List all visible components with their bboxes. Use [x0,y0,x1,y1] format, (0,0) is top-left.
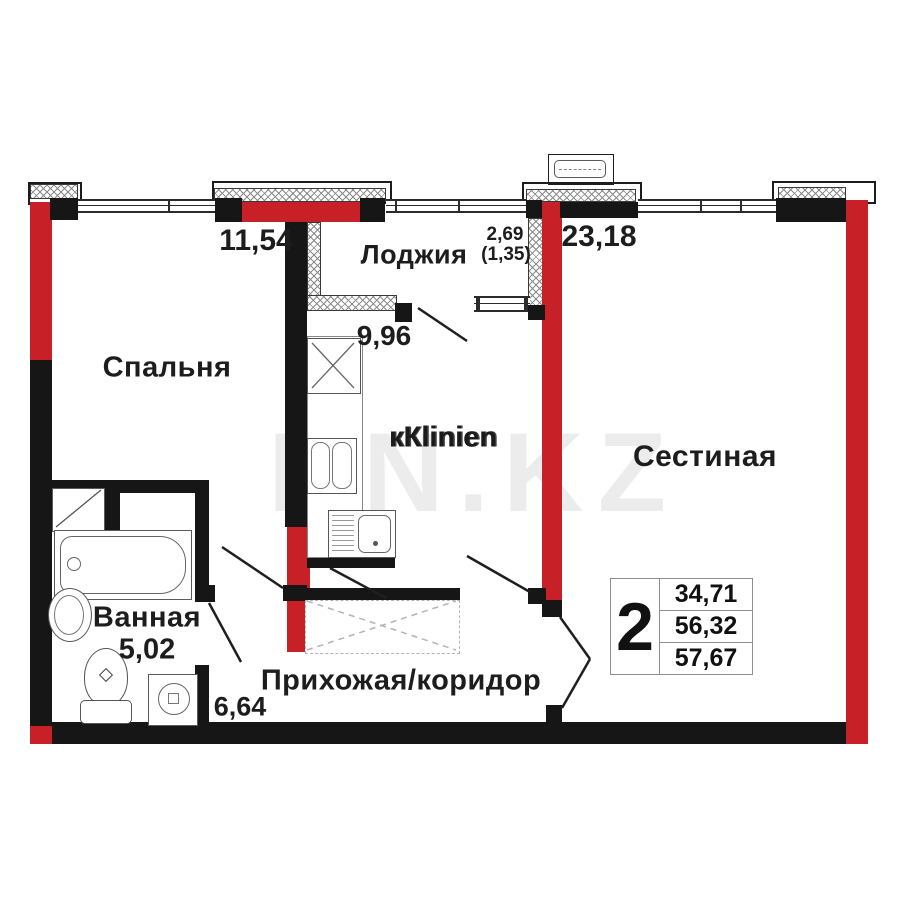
washing-machine-dial [168,693,179,704]
bathroom-sink-bowl [54,595,84,635]
bedroom-area: 11,54 [219,224,292,258]
bathroom-sink [48,588,92,642]
wall-left-lower [30,360,52,726]
total-area-value: 57,67 [660,642,752,674]
bathroom-area: 5,02 [119,634,175,667]
wall-red-left-upper [30,202,52,360]
kitchen-fridge-door-1 [311,442,330,489]
loggia-area: 2,69 [487,224,524,246]
wall-wardrobe-top [303,588,460,600]
hatch-top-left [30,184,78,199]
living-area-value: 34,71 [660,579,752,610]
toilet-tank [80,700,132,724]
kitchen-fridge-door-2 [332,442,352,489]
wall-red-bottom-left-corner [30,726,52,744]
loggia-area-coefficient: (1,35) [481,244,531,266]
wall-red-central [542,202,562,600]
wall-shaft-edge [103,488,120,530]
wall-bathroom-right-upper [195,480,209,585]
wall-bathroom-door-jamb [195,585,215,602]
wall-entry-notch [546,705,562,722]
kitchen-stove [307,338,361,394]
hallway-label: Прихожая/коридор [261,665,541,698]
wall-hall-door-jamb-b [542,600,562,617]
kitchen-label-garbled: кКlinien [389,422,497,455]
window-loggia-facade [386,199,526,213]
floor-plan: KN.KZ [0,0,900,900]
window-kitchen-loggia [474,296,530,312]
area-without-loggia-value: 56,32 [660,610,752,642]
wall-loggia-right-end [528,305,545,320]
bathroom-label: Ванная [93,602,201,635]
wall-pier-center [526,200,542,218]
living-room-label: Сестиная [633,440,777,474]
wall-living-top [560,202,638,218]
hallway-area: 6,64 [214,692,267,723]
wall-pier-top-left [50,198,78,220]
wall-red-top-bedroom [242,202,360,222]
window-bedroom [78,199,215,213]
loggia-label: Лоджия [361,240,468,271]
apartment-info-table: 2 34,71 56,32 57,67 [610,578,753,675]
kitchen-sink-drainboard [332,515,354,551]
wall-pier-top-right [776,198,846,222]
ac-unit-dash [559,169,601,170]
wall-red-right [846,200,868,744]
kitchen-fridge [307,438,357,494]
kitchen-sink [328,510,396,558]
hatch-center-top [526,189,636,202]
washing-machine [148,674,198,726]
ventilation-shaft [52,488,105,532]
kitchen-sink-basin [358,515,391,553]
kitchen-sink-faucet [373,541,378,546]
window-living-room [638,199,776,213]
kitchen-area: 9,96 [357,320,412,352]
hatch-loggia-left [307,222,321,300]
wall-bedroom-kitchen [285,222,307,527]
bedroom-label: Спальня [103,352,232,385]
wardrobe [305,600,460,654]
hatch-loggia-bottom [307,295,397,311]
wall-bedroom-door-jamb [283,585,307,601]
wall-pier-loggia-right [360,198,385,222]
rooms-count: 2 [611,579,660,674]
ac-unit [554,160,606,178]
wall-pier-loggia-left [215,198,242,222]
bathtub-drain [67,557,81,571]
living-room-area: 23,18 [561,220,636,254]
